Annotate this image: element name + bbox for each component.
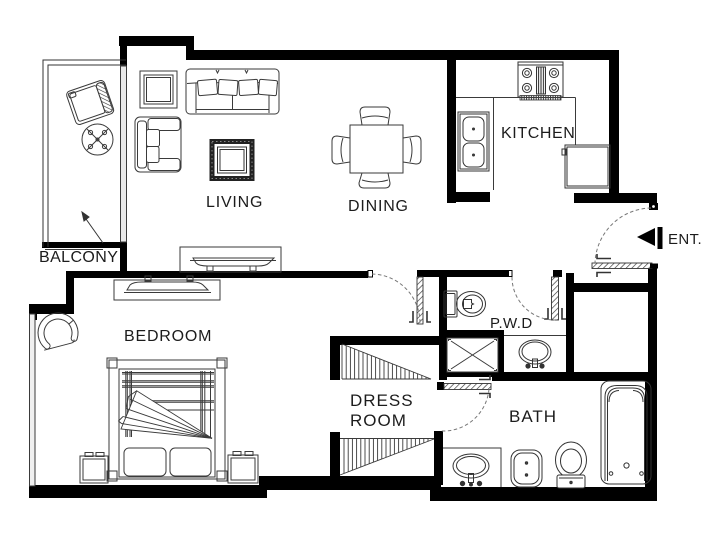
- svg-text:LIVING: LIVING: [206, 194, 263, 211]
- svg-text:BATH: BATH: [509, 407, 557, 426]
- svg-text:DRESS: DRESS: [350, 391, 414, 410]
- svg-text:ENT.: ENT.: [668, 231, 702, 248]
- svg-text:DINING: DINING: [348, 198, 409, 215]
- svg-text:P.W.D: P.W.D: [490, 315, 533, 332]
- svg-text:ROOM: ROOM: [350, 411, 407, 430]
- svg-text:KITCHEN: KITCHEN: [501, 125, 575, 142]
- svg-text:BALCONY: BALCONY: [39, 249, 118, 266]
- svg-text:BEDROOM: BEDROOM: [124, 328, 212, 345]
